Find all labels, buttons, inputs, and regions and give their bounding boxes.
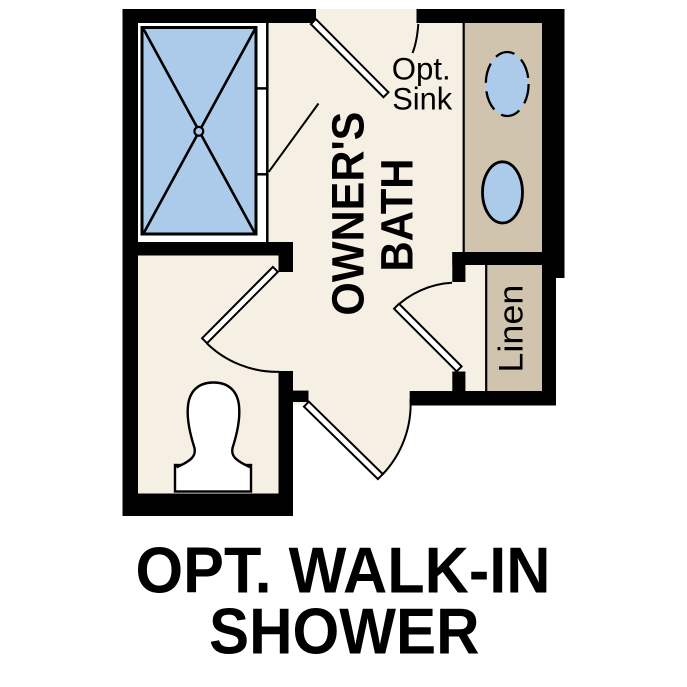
svg-text:OWNER'S: OWNER'S bbox=[323, 112, 374, 316]
svg-text:SHOWER: SHOWER bbox=[209, 595, 480, 668]
svg-text:Sink: Sink bbox=[392, 81, 452, 117]
svg-text:Linen: Linen bbox=[492, 285, 530, 373]
svg-text:BATH: BATH bbox=[372, 159, 423, 272]
